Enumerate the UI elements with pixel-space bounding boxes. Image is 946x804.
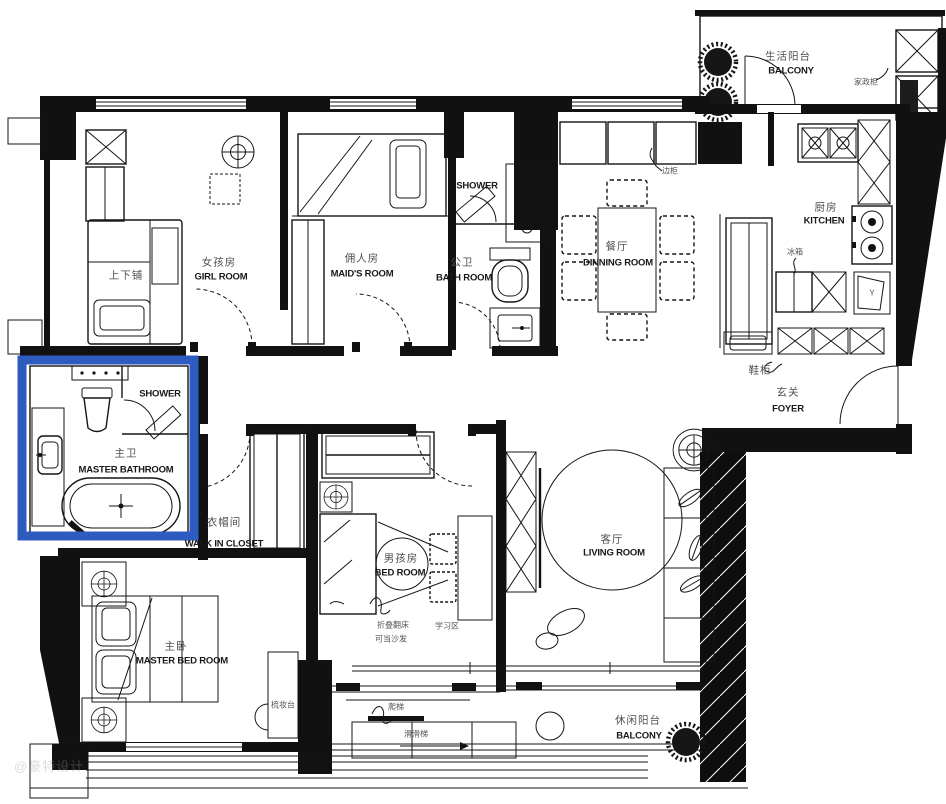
room-label-boy-room-en: BED ROOM (375, 568, 426, 579)
annotation-ladder: 爬梯 (388, 702, 404, 713)
label-public-shower: SHOWER (456, 181, 498, 192)
room-label-master-bath-en: MASTER BATHROOM (79, 465, 174, 476)
room-label-public-bath-zh: 公卫 (451, 255, 474, 270)
annotation-shoe-cabinet: 鞋柜 (749, 363, 772, 378)
room-label-leisure-balcony-en: BALCONY (616, 731, 662, 742)
room-label-closet-en: WALK IN CLOSET (185, 539, 263, 550)
room-label-maid-room-zh: 佣人房 (345, 251, 380, 266)
annotation-folding-bed-2: 可当沙发 (375, 634, 407, 645)
room-label-boy-room-zh: 男孩房 (384, 551, 419, 566)
annotation-housekeeping-cabinet: 家政柜 (854, 77, 878, 88)
room-label-living-zh: 客厅 (601, 532, 624, 547)
watermark: @豪特设计 (14, 756, 84, 775)
room-label-foyer-en: FOYER (772, 404, 804, 415)
room-label-living-en: LIVING ROOM (583, 548, 645, 559)
annotation-slide: 滑滑梯 (404, 729, 428, 740)
annotation-dresser: 梳妆台 (271, 700, 295, 711)
room-label-master-bath-zh: 主卫 (115, 446, 138, 461)
annotation-folding-bed-1: 折叠翻床 (377, 620, 409, 631)
annotation-washer: Y (869, 289, 874, 298)
room-label-closet-zh: 衣帽间 (207, 515, 242, 530)
room-label-dining-en: DINNING ROOM (583, 258, 653, 269)
room-label-life-balcony-en: BALCONY (768, 66, 814, 77)
annotation-study-area: 学习区 (435, 621, 459, 632)
label-master-shower: SHOWER (139, 389, 181, 400)
highlight-box (22, 360, 194, 536)
room-label-master-bed-en: MASTER BED ROOM (136, 656, 228, 667)
room-label-kitchen-zh: 厨房 (815, 200, 838, 215)
room-label-public-bath-en: BATH ROOM (436, 273, 492, 284)
annotation-fridge: 冰箱 (787, 247, 803, 258)
room-label-dining-zh: 餐厅 (606, 239, 629, 254)
room-label-girl-room-en: GIRL ROOM (195, 272, 248, 283)
room-label-master-bed-zh: 主卧 (165, 639, 188, 654)
room-label-life-balcony-zh: 生活阳台 (765, 49, 811, 64)
floorplan-drawing (0, 0, 946, 804)
annotation-side-cabinet: 边柜 (662, 166, 678, 177)
room-label-girl-room-zh: 女孩房 (202, 255, 237, 270)
room-label-kitchen-en: KITCHEN (804, 216, 845, 227)
room-label-leisure-balcony-zh: 休闲阳台 (615, 713, 661, 728)
floor-plan: 生活阳台 BALCONY 家政柜 女孩房 GIRL ROOM 上下铺 佣人房 M… (0, 0, 946, 804)
annotation-bunk-bed: 上下铺 (109, 268, 144, 283)
room-label-maid-room-en: MAID'S ROOM (331, 269, 394, 280)
room-label-foyer-zh: 玄关 (777, 385, 800, 400)
